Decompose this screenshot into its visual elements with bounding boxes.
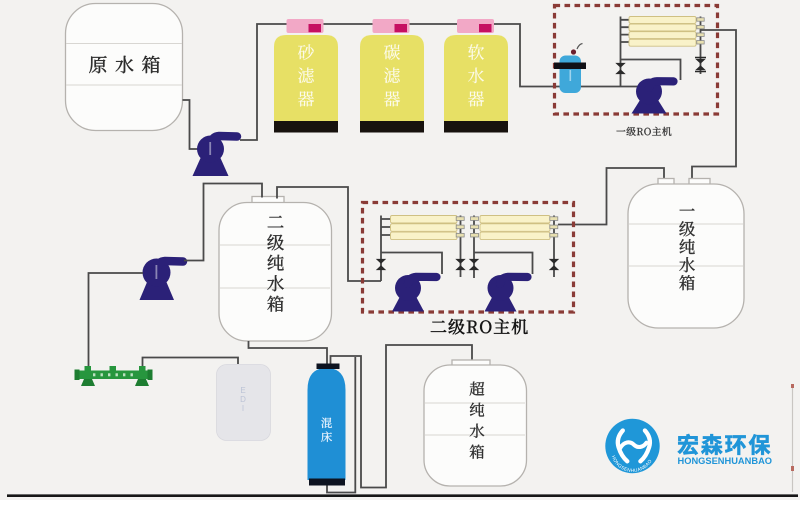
svg-text:D: D xyxy=(240,395,246,404)
svg-text:I: I xyxy=(242,404,244,413)
svg-text:E: E xyxy=(240,386,245,395)
svg-text:HONGSENHUANBAO: HONGSENHUANBAO xyxy=(678,456,773,466)
